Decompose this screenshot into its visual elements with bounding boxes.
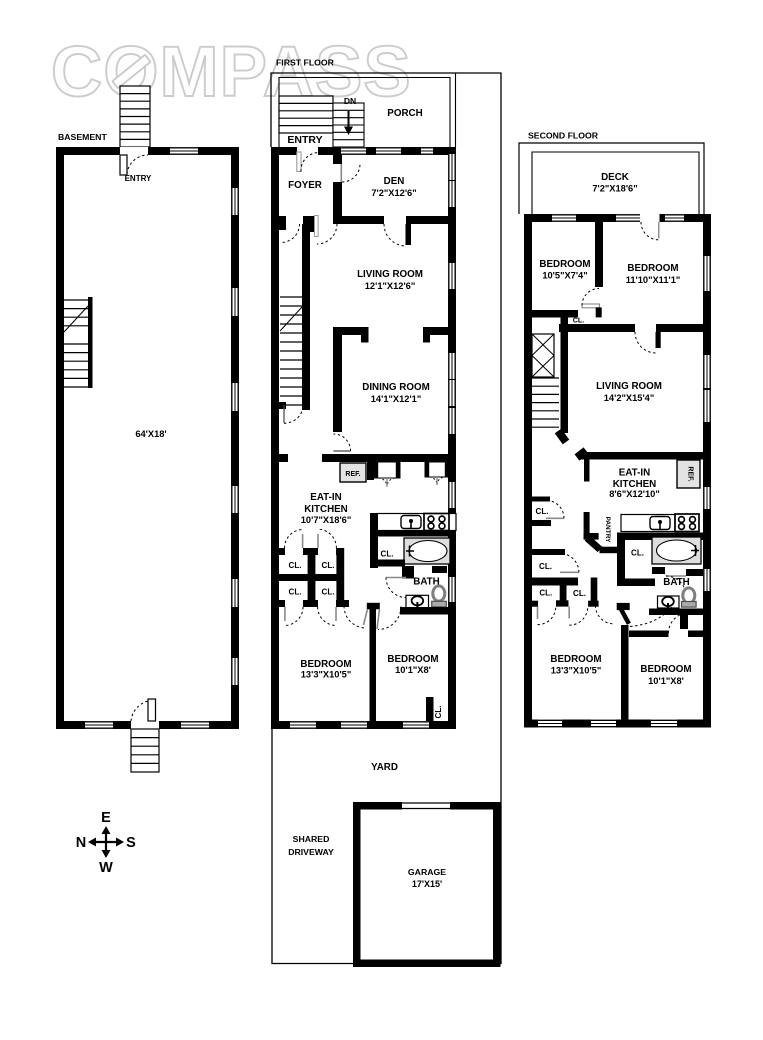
svg-text:13'3"X10'5": 13'3"X10'5" [551,666,601,676]
svg-text:KITCHEN: KITCHEN [304,504,348,515]
svg-text:LIVING ROOM: LIVING ROOM [596,381,662,392]
svg-text:REF.: REF. [687,466,694,481]
svg-text:EAT-IN: EAT-IN [619,468,650,479]
svg-text:CL.: CL. [322,588,335,597]
svg-text:BATH: BATH [663,577,689,588]
svg-text:DN: DN [344,96,356,106]
svg-text:CL.: CL. [322,561,335,570]
svg-text:LIVING ROOM: LIVING ROOM [357,269,423,280]
svg-text:7'2"X18'6": 7'2"X18'6" [592,184,637,194]
svg-text:7'2"X12'6": 7'2"X12'6" [371,188,416,198]
svg-text:BEDROOM: BEDROOM [550,654,601,665]
svg-text:ENTRY: ENTRY [125,174,152,183]
svg-text:10'5"X7'4": 10'5"X7'4" [542,271,587,281]
svg-text:8'6"X12'10": 8'6"X12'10" [609,489,659,499]
svg-text:BEDROOM: BEDROOM [300,659,351,670]
svg-text:64'X18': 64'X18' [135,429,166,439]
svg-text:11'10"X11'1": 11'10"X11'1" [626,275,681,285]
svg-text:REF.: REF. [345,471,360,478]
svg-text:W: W [99,860,113,876]
svg-text:CL.: CL. [289,561,302,570]
svg-text:E: E [101,810,111,826]
svg-text:YARD: YARD [371,762,398,773]
svg-text:DINING ROOM: DINING ROOM [362,382,430,393]
svg-text:N: N [76,835,86,851]
svg-text:BEDROOM: BEDROOM [640,664,691,675]
svg-text:BEDROOM: BEDROOM [539,259,590,270]
svg-text:CL.: CL. [539,562,552,571]
svg-text:SHARED: SHARED [293,834,330,844]
svg-text:CL.: CL. [631,549,644,558]
svg-text:CL.: CL. [434,706,443,719]
svg-text:PANTRY: PANTRY [604,517,611,544]
svg-text:FOYER: FOYER [288,180,322,191]
svg-text:BEDROOM: BEDROOM [627,263,678,274]
svg-text:13'3"X10'5": 13'3"X10'5" [301,670,351,680]
svg-text:ENTRY: ENTRY [287,134,322,146]
svg-text:GARAGE: GARAGE [408,867,446,877]
svg-text:DEN: DEN [384,176,405,187]
svg-text:10'7"X18'6": 10'7"X18'6" [301,515,351,525]
svg-text:10'1"X8': 10'1"X8' [648,676,684,686]
svg-text:17'X15': 17'X15' [412,879,442,889]
svg-text:CL.: CL. [573,589,586,598]
svg-text:14'1"X12'1": 14'1"X12'1" [371,394,421,404]
svg-text:SECOND FLOOR: SECOND FLOOR [528,131,599,141]
svg-text:CL.: CL. [536,507,549,516]
svg-text:CL.: CL. [573,316,585,325]
svg-text:PORCH: PORCH [387,108,422,119]
svg-text:CL.: CL. [289,588,302,597]
svg-text:DECK: DECK [601,172,629,183]
svg-text:EAT-IN: EAT-IN [310,492,341,503]
svg-text:BASEMENT: BASEMENT [58,132,107,142]
svg-text:S: S [126,835,136,851]
svg-text:CL.: CL. [381,550,394,559]
svg-text:DRIVEWAY: DRIVEWAY [288,847,334,857]
svg-text:10'1"X8': 10'1"X8' [395,665,431,675]
svg-text:12'1"X12'6": 12'1"X12'6" [365,281,415,291]
svg-text:FIRST FLOOR: FIRST FLOOR [276,58,335,68]
svg-text:CL.: CL. [539,589,552,598]
svg-text:14'2"X15'4": 14'2"X15'4" [604,393,654,403]
svg-text:BEDROOM: BEDROOM [387,654,438,665]
